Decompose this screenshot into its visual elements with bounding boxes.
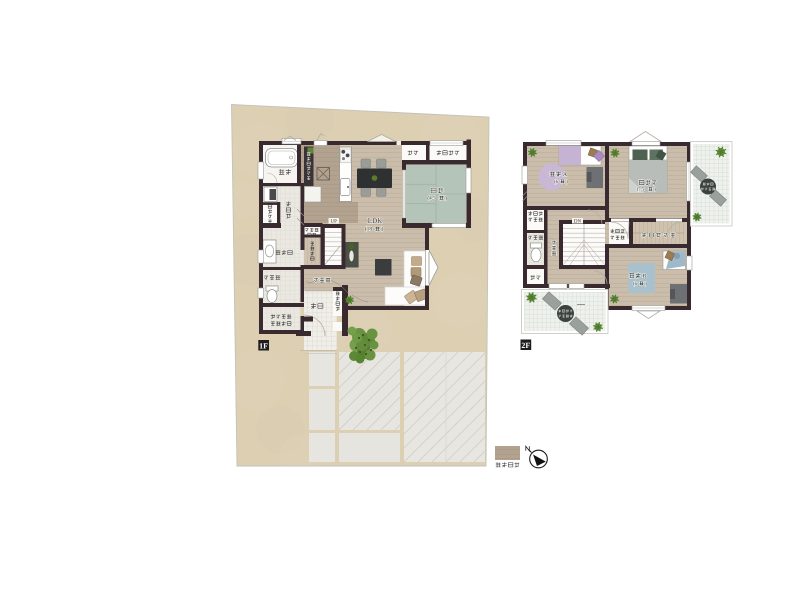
svg-text:(18: (18	[365, 227, 373, 233]
svg-text:UP: UP	[330, 219, 337, 225]
svg-text:): )	[445, 196, 447, 202]
svg-text:(6: (6	[554, 179, 559, 185]
svg-text:LDK: LDK	[368, 217, 382, 225]
svg-text:B: B	[643, 274, 647, 280]
svg-text:): )	[382, 227, 384, 233]
svg-text:A: A	[563, 172, 567, 178]
svg-text:(4.5: (4.5	[427, 196, 436, 202]
svg-text:(6: (6	[633, 281, 638, 287]
svg-text:DN: DN	[574, 219, 582, 225]
svg-text:(7.5: (7.5	[637, 187, 645, 193]
svg-text:2F: 2F	[521, 341, 530, 350]
svg-text:1F: 1F	[259, 342, 268, 351]
